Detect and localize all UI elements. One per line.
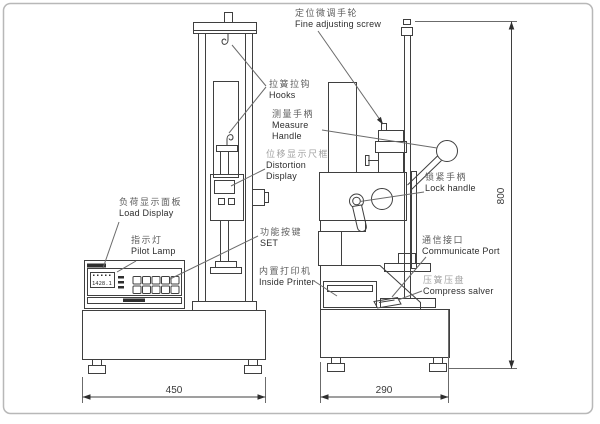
distortion-display-unit (211, 175, 244, 221)
front-feet (89, 360, 262, 374)
label-set-keys: 功能按键 SET (260, 227, 302, 249)
side-view-machine: 800 290 (319, 20, 518, 404)
rod-top-tick (404, 20, 411, 25)
label-compress-salver-cn: 压簧压盘 (423, 275, 494, 286)
lock-pivot-inner (353, 197, 361, 205)
label-compress-salver-en: Compress salver (423, 286, 494, 297)
label-communicate-port: 通信接口 Communicate Port (422, 235, 500, 257)
lock-handle-lever (353, 205, 367, 232)
lower-plate-wide (211, 268, 242, 274)
diagram-canvas: 1428.1 450 (0, 0, 600, 424)
label-hooks: 拉簧拉钩 Hooks (269, 79, 311, 101)
control-panel: 1428.1 (85, 261, 185, 309)
dim-front-width: 450 (166, 385, 183, 396)
column-window (214, 82, 239, 178)
label-inside-printer: 内置打印机 Inside Printer (259, 266, 315, 288)
label-load-display: 负荷显示面板 Load Display (119, 197, 182, 219)
column-plinth (193, 302, 257, 311)
label-fine-adjusting-screw-cn: 定位微调手轮 (295, 8, 381, 19)
label-fine-adjusting-screw: 定位微调手轮 Fine adjusting screw (295, 8, 381, 30)
label-lock-handle-cn: 锁紧手柄 (425, 172, 476, 183)
lower-plate-small (216, 262, 237, 268)
front-base (83, 311, 266, 360)
dimension-800: 800 (415, 22, 517, 369)
rod-collar-bottom (399, 254, 416, 264)
label-compress-salver: 压簧压盘 Compress salver (423, 275, 494, 297)
label-hooks-cn: 拉簧拉钩 (269, 79, 311, 90)
label-lock-handle: 锁紧手柄 Lock handle (425, 172, 476, 194)
label-measure-handle: 测量手柄 Measure Handle (272, 109, 324, 142)
fine-adjust-screw (382, 124, 387, 131)
right-column (246, 34, 253, 302)
label-load-display-cn: 负荷显示面板 (119, 197, 182, 208)
function-keypad (133, 277, 179, 294)
label-distortion-display-en: Distortion Display (266, 160, 318, 182)
fine-adjust-mechanism (366, 124, 407, 173)
top-plate (194, 23, 257, 34)
inside-printer-unit (324, 282, 377, 308)
label-hooks-en: Hooks (269, 90, 311, 101)
left-column (199, 34, 206, 302)
label-measure-handle-en: Measure Handle (272, 120, 324, 142)
communicate-port-connector (374, 298, 401, 309)
neck-column (319, 232, 342, 266)
upper-platen (385, 264, 431, 272)
side-box (253, 190, 265, 206)
label-set-keys-cn: 功能按键 (260, 227, 302, 238)
printer-slot (328, 286, 373, 292)
label-distortion-display: 位移显示尺框 Distortion Display (266, 149, 329, 182)
label-pilot-lamp-cn: 指示灯 (131, 235, 176, 246)
label-load-display-en: Load Display (119, 208, 182, 219)
label-fine-adjusting-screw-en: Fine adjusting screw (295, 19, 381, 30)
side-feet (328, 358, 447, 372)
upper-hook-icon (222, 34, 228, 44)
label-pilot-lamp-en: Pilot Lamp (131, 246, 176, 257)
panel-name-strip (123, 299, 145, 303)
display-dots (93, 275, 111, 277)
label-distortion-display-cn: 位移显示尺框 (266, 149, 329, 160)
dim-height: 800 (496, 187, 507, 204)
label-lock-handle-en: Lock handle (425, 183, 476, 194)
side-base (321, 310, 450, 358)
label-inside-printer-cn: 内置打印机 (259, 266, 315, 277)
hook-platform (217, 146, 238, 152)
label-inside-printer-en: Inside Printer (259, 277, 315, 288)
dimension-290: 290 (321, 310, 449, 403)
lower-hook-icon (227, 135, 233, 146)
label-measure-handle-cn: 测量手柄 (272, 109, 324, 120)
dim-side-width: 290 (376, 385, 393, 396)
label-pilot-lamp: 指示灯 Pilot Lamp (131, 235, 176, 257)
measure-handle-ball (437, 141, 458, 162)
label-set-keys-en: SET (260, 238, 302, 249)
side-tower (329, 83, 357, 173)
load-display-value: 1428.1 (92, 281, 112, 287)
pilot-lamps (118, 276, 124, 289)
label-communicate-port-en: Communicate Port (422, 246, 500, 257)
side-body-outline (321, 266, 421, 310)
top-knob (225, 13, 233, 23)
label-communicate-port-cn: 通信接口 (422, 235, 500, 246)
rod-collar-top (402, 28, 413, 36)
distortion-screen (215, 181, 235, 194)
border-frame (4, 4, 593, 414)
dimension-450: 450 (83, 377, 266, 403)
machine-drawing: 1428.1 450 (0, 0, 600, 424)
